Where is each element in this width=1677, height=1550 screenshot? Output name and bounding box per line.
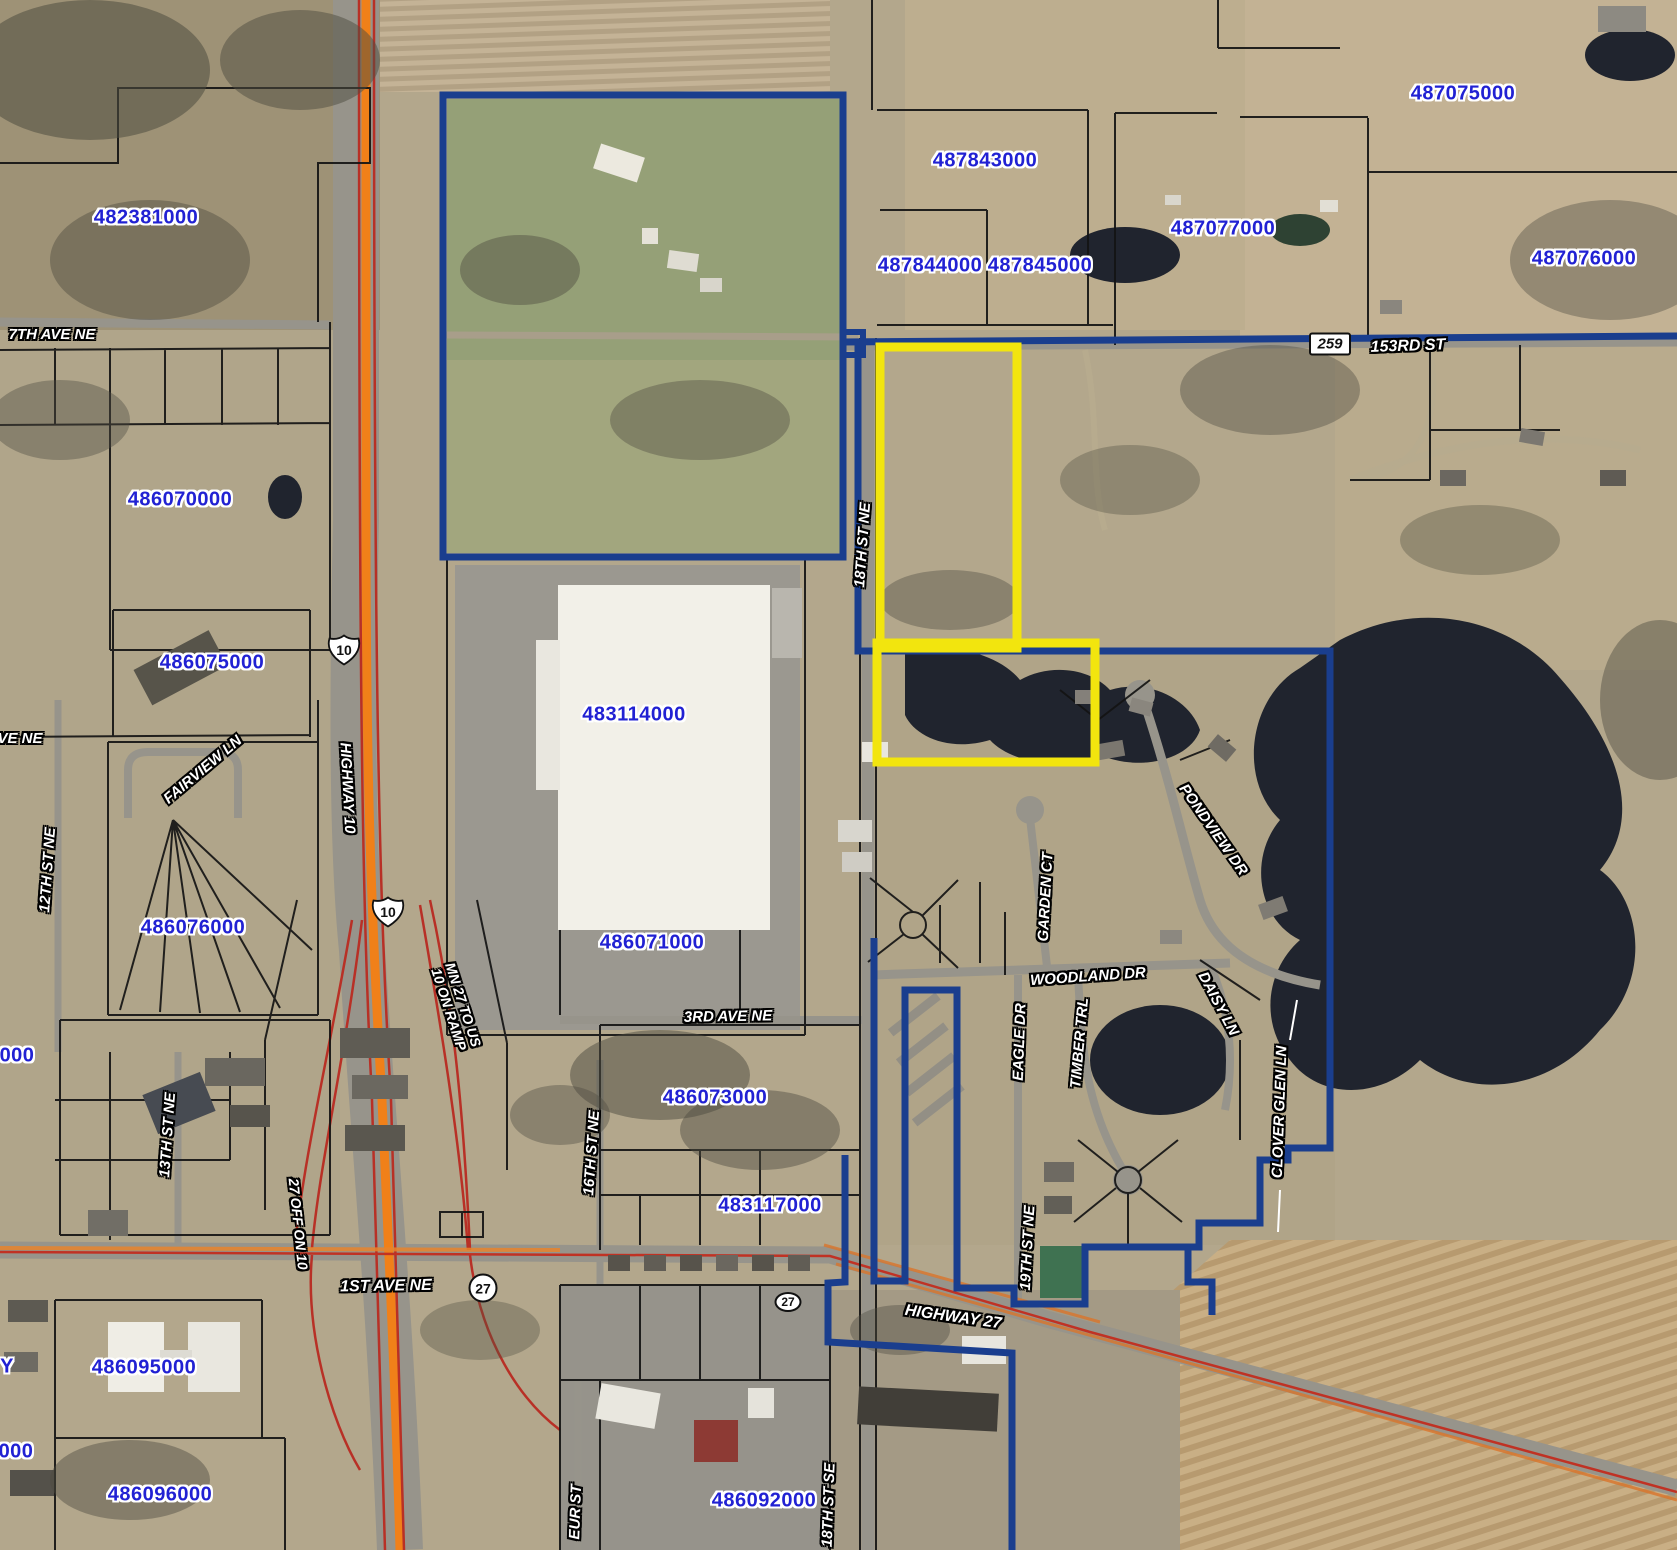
aerial-basemap [0, 0, 1677, 1550]
gis-parcel-map: 4823810004860700004860750004860760004860… [0, 0, 1677, 1550]
